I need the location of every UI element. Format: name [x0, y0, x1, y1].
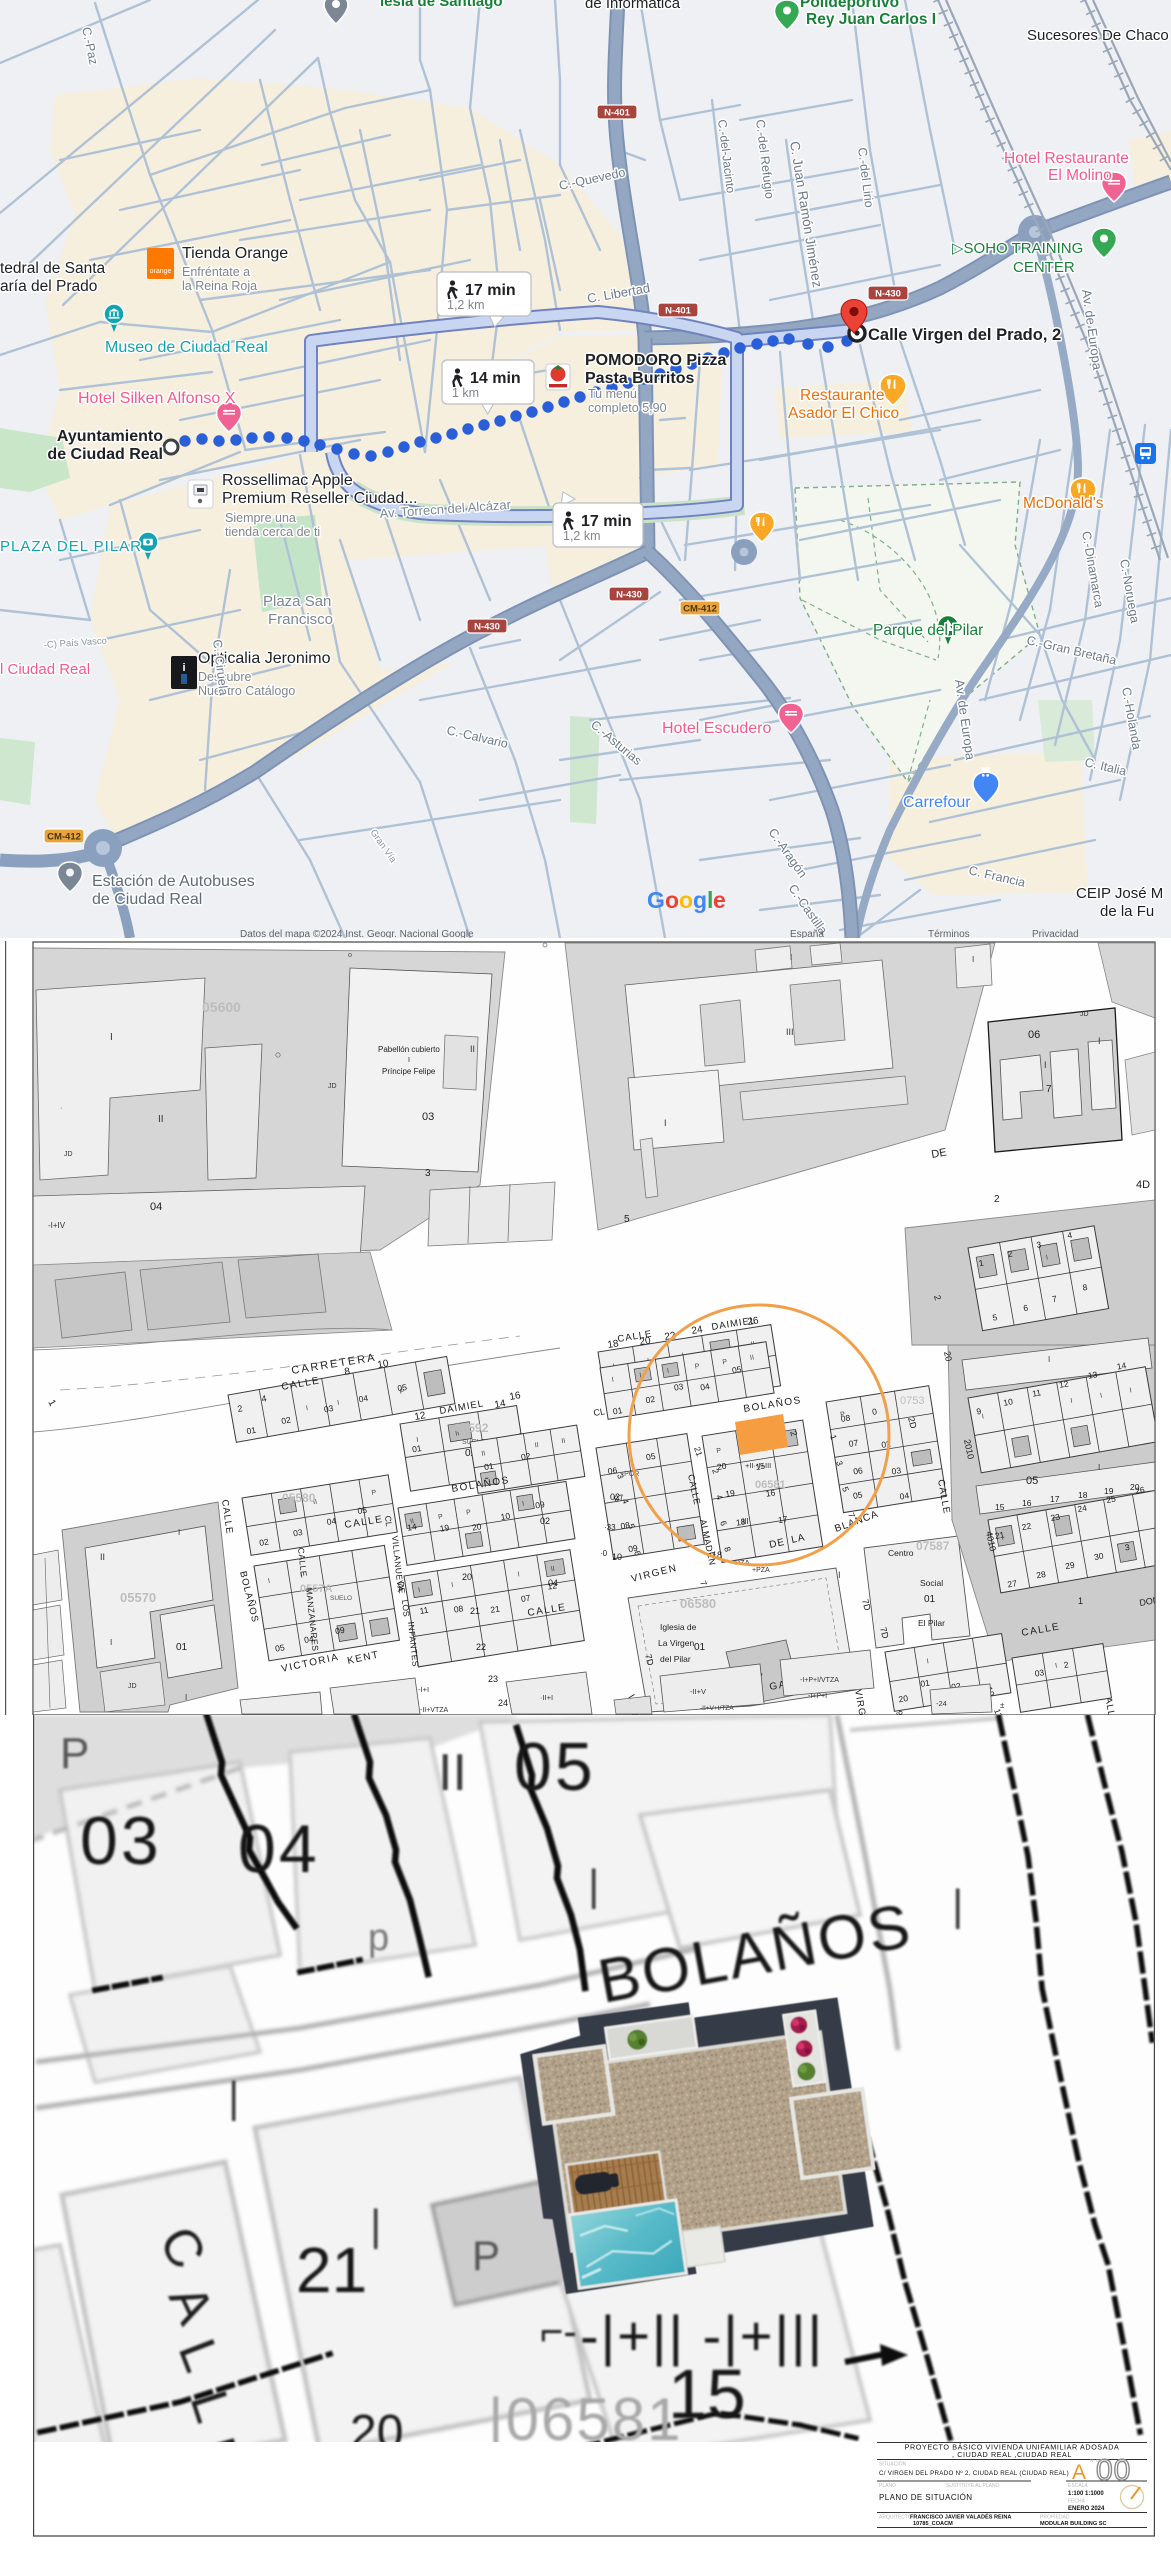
svg-text:09: 09	[535, 1499, 546, 1510]
svg-text:01: 01	[924, 1594, 936, 1605]
svg-text:1:100 1:1000: 1:100 1:1000	[1068, 2491, 1104, 2497]
svg-text:Hotel Restaurante: Hotel Restaurante	[1004, 150, 1129, 167]
svg-text:N-401: N-401	[665, 306, 692, 317]
svg-text:Pabellón cubierto: Pabellón cubierto	[378, 1045, 440, 1054]
svg-text:o: o	[679, 887, 693, 913]
svg-text:04: 04	[899, 1490, 910, 1501]
svg-text:El Pilar: El Pilar	[918, 1618, 945, 1628]
svg-text:CL: CL	[593, 1406, 606, 1418]
svg-text:10: 10	[1003, 1396, 1014, 1408]
svg-text:29: 29	[1064, 1560, 1075, 1572]
svg-text:I: I	[790, 953, 792, 962]
svg-text:CM-412: CM-412	[683, 604, 717, 615]
svg-text:-I+I: -I+I	[418, 1685, 429, 1694]
svg-text:JD: JD	[128, 1683, 137, 1690]
svg-text:Francisco: Francisco	[268, 611, 333, 628]
svg-text:aría del Prado: aría del Prado	[0, 278, 97, 295]
svg-text:24: 24	[691, 1324, 704, 1337]
svg-text:05: 05	[731, 1364, 742, 1375]
svg-text:09: 09	[334, 1625, 345, 1636]
svg-text:23: 23	[1050, 1511, 1061, 1523]
svg-text:01: 01	[612, 1405, 623, 1416]
svg-text:tienda cerca de ti: tienda cerca de ti	[225, 525, 320, 539]
svg-text:20: 20	[462, 1572, 472, 1582]
svg-text:CENTER: CENTER	[1013, 259, 1075, 276]
svg-text:19: 19	[439, 1522, 450, 1533]
svg-text:SUELO: SUELO	[330, 1595, 352, 1602]
svg-text:Hotel Escudero: Hotel Escudero	[662, 720, 771, 737]
svg-text:PROPIEDAD: PROPIEDAD	[1040, 2515, 1070, 2521]
svg-text:de la Fu: de la Fu	[1100, 903, 1154, 920]
svg-text:03: 03	[673, 1381, 684, 1392]
svg-text:28: 28	[1035, 1569, 1046, 1581]
svg-text:Tu menú: Tu menú	[588, 387, 637, 401]
svg-text:-24: -24	[936, 1699, 947, 1708]
svg-text:Carrefour: Carrefour	[903, 794, 971, 811]
svg-text:|: |	[588, 1861, 599, 1910]
svg-text:e: e	[713, 887, 726, 913]
svg-text:01: 01	[694, 1642, 706, 1653]
svg-text:17 min: 17 min	[581, 513, 632, 530]
svg-text:▷SOHO TRAINING: ▷SOHO TRAINING	[952, 240, 1083, 257]
svg-text:Iglesia de: Iglesia de	[660, 1622, 697, 1632]
svg-text:I: I	[408, 1057, 410, 1064]
svg-text:I: I	[1098, 1463, 1100, 1472]
svg-text:G: G	[647, 887, 665, 913]
svg-text:19: 19	[1104, 1486, 1114, 1496]
svg-text:PLANO DE SITUACIÓN: PLANO DE SITUACIÓN	[879, 2493, 972, 2502]
svg-text:05: 05	[1026, 1475, 1038, 1487]
svg-text:Tienda Orange: Tienda Orange	[182, 245, 288, 262]
svg-text:Enfréntate a: Enfréntate a	[182, 265, 250, 279]
svg-text:05: 05	[357, 1505, 368, 1516]
svg-text:Rossellimac Apple: Rossellimac Apple	[222, 472, 353, 489]
svg-text:24: 24	[498, 1698, 508, 1708]
svg-text:11: 11	[419, 1605, 430, 1616]
svg-text:|: |	[370, 2201, 381, 2250]
svg-text:CEIP José M: CEIP José M	[1076, 885, 1163, 902]
svg-text:de Ciudad Real: de Ciudad Real	[92, 891, 202, 908]
svg-text:0753: 0753	[900, 1395, 924, 1407]
svg-text:06580: 06580	[680, 1596, 716, 1611]
svg-text:05570: 05570	[120, 1590, 156, 1605]
svg-text:05: 05	[274, 1642, 285, 1653]
svg-text:01: 01	[176, 1642, 188, 1653]
svg-text:07587: 07587	[916, 1539, 950, 1553]
svg-text:I: I	[110, 1032, 113, 1043]
svg-text:22: 22	[476, 1642, 486, 1652]
svg-text:Restaurante: Restaurante	[800, 387, 884, 404]
svg-text:18: 18	[1078, 1490, 1088, 1500]
svg-text:Calle Virgen del Prado, 2: Calle Virgen del Prado, 2	[868, 326, 1061, 344]
svg-text:4D: 4D	[1136, 1179, 1150, 1191]
svg-text:P: P	[472, 2232, 500, 2279]
svg-text:II: II	[470, 1044, 475, 1054]
svg-text:20: 20	[1130, 1482, 1140, 1492]
svg-text:20: 20	[471, 1521, 482, 1532]
svg-text:04: 04	[326, 1516, 337, 1527]
svg-text:FRANCISCO JAVIER VALADÉS RE: FRANCISCO JAVIER VALADÉS REINA	[910, 2513, 1011, 2521]
svg-text:lesia de Santiago: lesia de Santiago	[380, 0, 503, 10]
svg-text:06: 06	[852, 1465, 863, 1476]
svg-text:La Virgen: La Virgen	[658, 1638, 695, 1648]
svg-text:N-401: N-401	[604, 108, 631, 119]
svg-text:01: 01	[246, 1425, 257, 1437]
svg-text:05: 05	[645, 1451, 656, 1462]
svg-text:PLAZA DEL PILAR: PLAZA DEL PILAR	[0, 538, 142, 555]
svg-text:POMODORO Pizza: POMODORO Pizza	[585, 352, 726, 369]
svg-text:07: 07	[848, 1437, 859, 1448]
svg-text:15: 15	[995, 1502, 1005, 1512]
svg-text:N-430: N-430	[875, 289, 901, 300]
svg-text:Plaza San: Plaza San	[263, 593, 331, 610]
svg-text:05: 05	[852, 1489, 863, 1500]
svg-text:-II+V: -II+V	[690, 1687, 706, 1696]
svg-text:Museo de Ciudad Real: Museo de Ciudad Real	[105, 339, 268, 356]
svg-text:Siempre una: Siempre una	[225, 511, 296, 525]
svg-text:13: 13	[1087, 1369, 1098, 1381]
svg-text:Sucesores De Chaco: Sucesores De Chaco	[1027, 27, 1169, 44]
svg-text:·33: ·33	[604, 1523, 616, 1532]
svg-text:21: 21	[490, 1603, 501, 1614]
svg-text:01: 01	[920, 1677, 931, 1688]
svg-text:14 min: 14 min	[470, 370, 521, 387]
svg-text:orange: orange	[150, 268, 172, 275]
svg-text:17: 17	[777, 1514, 788, 1525]
svg-text:-II+VTZA: -II+VTZA	[420, 1707, 449, 1714]
svg-text:DE: DE	[396, 1581, 407, 1594]
svg-text:I: I	[1044, 1060, 1047, 1070]
svg-text:02: 02	[280, 1415, 291, 1427]
svg-text:03: 03	[80, 1803, 162, 1879]
svg-text:04: 04	[700, 1381, 711, 1392]
svg-text:I: I	[110, 1638, 112, 1647]
svg-text:03: 03	[891, 1465, 902, 1476]
svg-text:02: 02	[520, 1451, 531, 1462]
svg-text:I: I	[1048, 1355, 1050, 1364]
svg-text:Pasta Burritos: Pasta Burritos	[585, 370, 694, 387]
svg-text:SITUACIÓN: SITUACIÓN	[879, 2461, 907, 2468]
svg-text:22: 22	[1021, 1521, 1032, 1533]
svg-text:McDonald's: McDonald's	[1023, 495, 1104, 512]
svg-text:±: ±	[1000, 1701, 1005, 1710]
svg-text:23: 23	[488, 1674, 498, 1684]
svg-text:1,2 km: 1,2 km	[563, 529, 601, 543]
svg-text:-I+P+I: -I+P+I	[808, 1693, 827, 1700]
svg-text:03: 03	[422, 1111, 434, 1123]
svg-text:Polideportivo: Polideportivo	[800, 0, 899, 11]
svg-text:completo 5,90: completo 5,90	[588, 401, 667, 415]
svg-text:|: |	[952, 1881, 963, 1930]
svg-text:JD: JD	[64, 1151, 73, 1158]
svg-text:08: 08	[453, 1603, 464, 1614]
svg-text:21: 21	[296, 2234, 367, 2306]
svg-text:05600: 05600	[202, 999, 241, 1015]
svg-text:ARQUITECTO: ARQUITECTO	[879, 2515, 912, 2521]
svg-text:N-430: N-430	[474, 622, 500, 633]
svg-text:21: 21	[470, 1606, 480, 1616]
svg-text:ENERO 2024: ENERO 2024	[1068, 2506, 1105, 2512]
svg-text:1: 1	[1078, 1596, 1083, 1606]
svg-text:02: 02	[258, 1536, 269, 1547]
svg-text:06581: 06581	[755, 1479, 786, 1491]
svg-text:Centro: Centro	[888, 1548, 914, 1558]
svg-text:Parque del Pilar: Parque del Pilar	[873, 622, 983, 639]
svg-text:SUSTITUYE AL PLANO: SUSTITUYE AL PLANO	[946, 2483, 1000, 2489]
svg-text:01: 01	[483, 1461, 494, 1472]
svg-text:III: III	[786, 1027, 794, 1037]
svg-text:12: 12	[1058, 1378, 1069, 1390]
svg-text:I: I	[178, 1528, 180, 1537]
svg-text:·: ·	[60, 1105, 62, 1112]
svg-text:JD: JD	[328, 1083, 337, 1090]
svg-text:CL: CL	[383, 1515, 394, 1527]
svg-text:03: 03	[292, 1527, 303, 1538]
svg-text:I: I	[972, 955, 974, 964]
svg-text:II: II	[100, 1552, 105, 1562]
svg-text:30: 30	[1093, 1551, 1104, 1563]
svg-text:7: 7	[1046, 1084, 1052, 1095]
svg-text:02: 02	[610, 1492, 620, 1502]
svg-text:|: |	[228, 2073, 239, 2122]
svg-text:PLANO: PLANO	[879, 2483, 896, 2489]
svg-text:10785_COACM: 10785_COACM	[913, 2521, 953, 2527]
svg-text:g: g	[693, 887, 707, 913]
svg-text:l Ciudad Real: l Ciudad Real	[0, 661, 90, 678]
svg-text:de Informática: de Informática	[585, 0, 681, 12]
svg-text:II: II	[158, 1114, 164, 1125]
svg-text:-I+P+I/VTZA: -I+P+I/VTZA	[800, 1677, 839, 1684]
svg-text:20: 20	[898, 1693, 909, 1704]
svg-text:03: 03	[1034, 1667, 1045, 1678]
svg-text:17 min: 17 min	[465, 282, 516, 299]
svg-text:de Ciudad Real: de Ciudad Real	[47, 446, 163, 463]
svg-text:-II+V+I/TZA: -II+V+I/TZA	[700, 1705, 734, 1712]
svg-text:·0: ·0	[600, 1549, 608, 1558]
svg-text:Social: Social	[920, 1578, 943, 1588]
svg-text:-I+IV: -I+IV	[48, 1221, 66, 1230]
svg-text:05580: 05580	[282, 1491, 316, 1505]
svg-text:·II+I: ·II+I	[540, 1693, 553, 1702]
svg-text:07: 07	[520, 1593, 531, 1604]
svg-text:⌐-: ⌐-	[540, 2310, 577, 2354]
svg-text:N-430: N-430	[616, 590, 642, 601]
svg-text:02: 02	[540, 1516, 550, 1526]
svg-text:04: 04	[548, 1578, 558, 1588]
svg-text:JD: JD	[1080, 1011, 1089, 1018]
svg-text:01: 01	[411, 1443, 422, 1454]
svg-text:06: 06	[1028, 1029, 1040, 1041]
svg-text:Nº DE: Nº DE	[1090, 2458, 1102, 2463]
svg-text:Asador El Chico: Asador El Chico	[788, 405, 899, 422]
svg-text:LOS: LOS	[400, 1599, 412, 1617]
svg-text:10: 10	[500, 1511, 511, 1522]
svg-text:la Reina Roja: la Reina Roja	[182, 279, 257, 293]
svg-text:FECHA: FECHA	[1068, 2499, 1086, 2505]
svg-text:17: 17	[1050, 1494, 1060, 1504]
svg-text:19: 19	[725, 1488, 736, 1499]
svg-text:C/ VIRGEN DEL PRADO Nº 2, CIUD: C/ VIRGEN DEL PRADO Nº 2, CIUDAD REAL (C…	[879, 2470, 1069, 2477]
svg-text:A: A	[1072, 2461, 1086, 2484]
svg-text:20: 20	[639, 1335, 652, 1348]
svg-text:I: I	[1098, 1036, 1101, 1046]
svg-text:04: 04	[238, 1811, 320, 1887]
svg-text:II: II	[438, 1744, 467, 1802]
svg-text:, CIUDAD REAL ,CIUDAD REAL: , CIUDAD REAL ,CIUDAD REAL	[952, 2450, 1072, 2459]
svg-text:Estación de Autobuses: Estación de Autobuses	[92, 873, 255, 890]
svg-text:P: P	[60, 1729, 89, 1778]
svg-text:MODULAR BUILDING SC: MODULAR BUILDING SC	[1040, 2521, 1107, 2527]
svg-text:Hotel Silken Alfonso X: Hotel Silken Alfonso X	[78, 390, 236, 407]
svg-text:Ayuntamiento: Ayuntamiento	[57, 428, 163, 445]
svg-text:26: 26	[747, 1315, 760, 1328]
svg-text:1,2 km: 1,2 km	[447, 298, 485, 312]
svg-text:27: 27	[1007, 1578, 1018, 1590]
svg-text:o: o	[665, 887, 679, 913]
svg-text:I: I	[664, 1118, 667, 1128]
svg-text:Rey Juan Carlos I: Rey Juan Carlos I	[806, 11, 936, 28]
svg-text:05: 05	[514, 1729, 596, 1805]
svg-text:14: 14	[1116, 1360, 1127, 1372]
svg-text:3: 3	[425, 1168, 431, 1179]
svg-text:Nuestro Catálogo: Nuestro Catálogo	[198, 684, 295, 698]
svg-text:05592: 05592	[455, 1421, 489, 1435]
svg-text:del Pilar: del Pilar	[660, 1654, 691, 1664]
svg-text:p: p	[368, 1917, 389, 1959]
svg-text:02: 02	[645, 1394, 656, 1405]
svg-text:I: I	[185, 1693, 187, 1702]
svg-text:tedral de Santa: tedral de Santa	[0, 260, 106, 277]
svg-text:I: I	[838, 1570, 841, 1580]
svg-text:04: 04	[358, 1393, 369, 1405]
svg-text:+PZA: +PZA	[752, 1567, 770, 1574]
svg-text:20: 20	[942, 1350, 954, 1362]
svg-text:2: 2	[994, 1194, 1000, 1205]
svg-text:24: 24	[1077, 1503, 1088, 1515]
svg-text:03: 03	[323, 1403, 334, 1415]
svg-text:04: 04	[150, 1201, 162, 1213]
svg-text:El Molino: El Molino	[1048, 167, 1112, 184]
svg-text:CM-412: CM-412	[47, 832, 81, 843]
svg-text:5: 5	[624, 1214, 630, 1225]
svg-text:1 km: 1 km	[452, 386, 479, 400]
svg-text:i: i	[182, 662, 185, 674]
svg-text:16: 16	[1022, 1498, 1032, 1508]
svg-text:III: III	[742, 1517, 749, 1526]
svg-text:10: 10	[612, 1552, 622, 1562]
svg-text:Príncipe Felipe: Príncipe Felipe	[382, 1067, 436, 1076]
svg-text:+II·-I+III: +II·-I+III	[745, 1461, 771, 1470]
